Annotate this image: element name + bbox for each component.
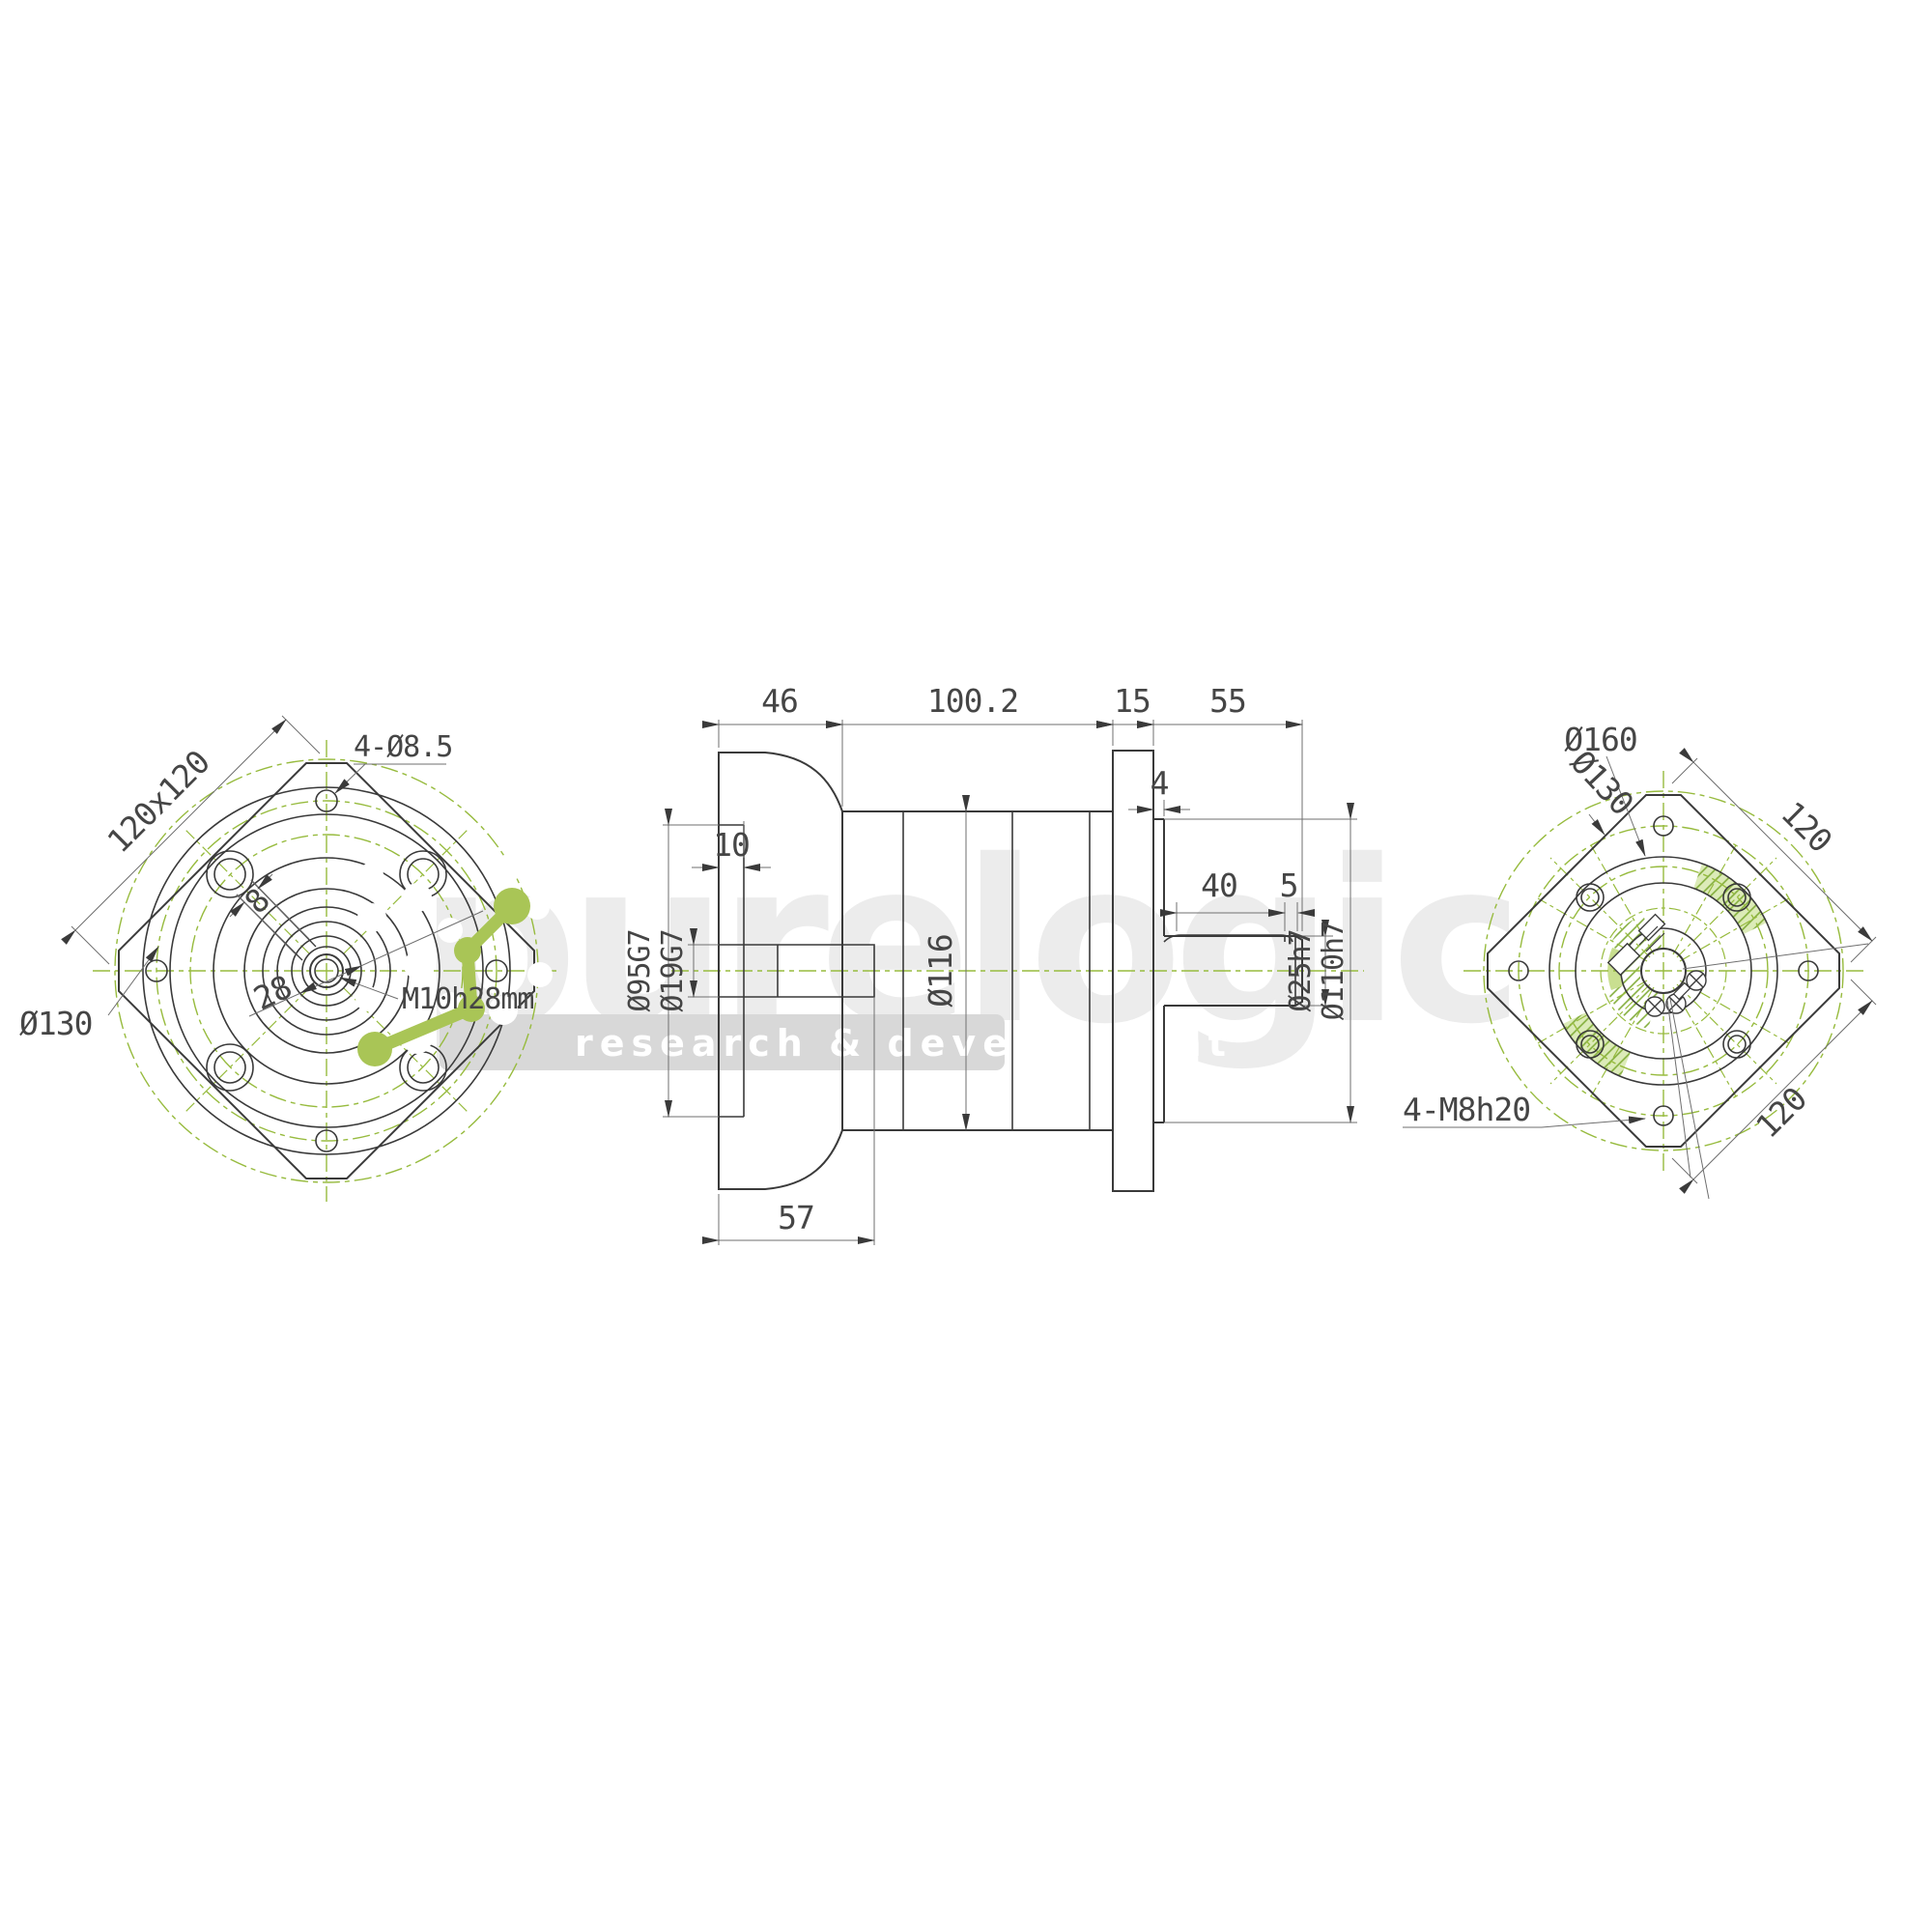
molecule-dot-1 bbox=[494, 888, 530, 924]
side-len-input-label: 46 bbox=[761, 682, 798, 720]
rear-ref-line-2 bbox=[1667, 1000, 1690, 1178]
side-recess-depth-label: 10 bbox=[713, 826, 750, 864]
rear-tapped-holes-label: 4-M8h20 bbox=[1403, 1091, 1530, 1128]
side-dia-shaft-label: Ø25h7 bbox=[1284, 929, 1318, 1011]
drawing-page: purelogic research & development bbox=[0, 0, 1932, 1932]
front-bolt-circle-label: Ø130 bbox=[19, 1005, 92, 1042]
side-dia-pilot-label: Ø110h7 bbox=[1317, 922, 1350, 1020]
side-len-body-label: 100.2 bbox=[927, 682, 1018, 720]
side-bore-depth-label: 57 bbox=[778, 1199, 814, 1236]
rear-square-w-label: 120 bbox=[1774, 794, 1839, 860]
molecule-dot-4 bbox=[357, 1032, 392, 1066]
rear-section-hatch bbox=[1563, 864, 1767, 1076]
side-dia-bore-label: Ø19G7 bbox=[656, 929, 690, 1011]
side-pilot-len-label: 4 bbox=[1151, 764, 1169, 802]
side-keyway-len-label: 40 bbox=[1201, 867, 1237, 904]
side-len-flange-label: 15 bbox=[1114, 682, 1151, 720]
side-dia-recess-label: Ø95G7 bbox=[623, 929, 657, 1011]
technical-drawing: purelogic research & development bbox=[0, 0, 1932, 1932]
rear-square-h-label: 120 bbox=[1748, 1080, 1814, 1146]
molecule-dot-2 bbox=[454, 937, 481, 964]
front-diagonal-sw bbox=[185, 988, 309, 1112]
side-len-shaft-label: 55 bbox=[1209, 682, 1246, 720]
side-keyway-gap-label: 5 bbox=[1280, 867, 1298, 904]
front-corner-holes-label: 4-Ø8.5 bbox=[354, 730, 452, 764]
front-thread-note-label: M10h28mm bbox=[402, 982, 534, 1016]
side-dia-body-label: Ø116 bbox=[922, 934, 959, 1007]
